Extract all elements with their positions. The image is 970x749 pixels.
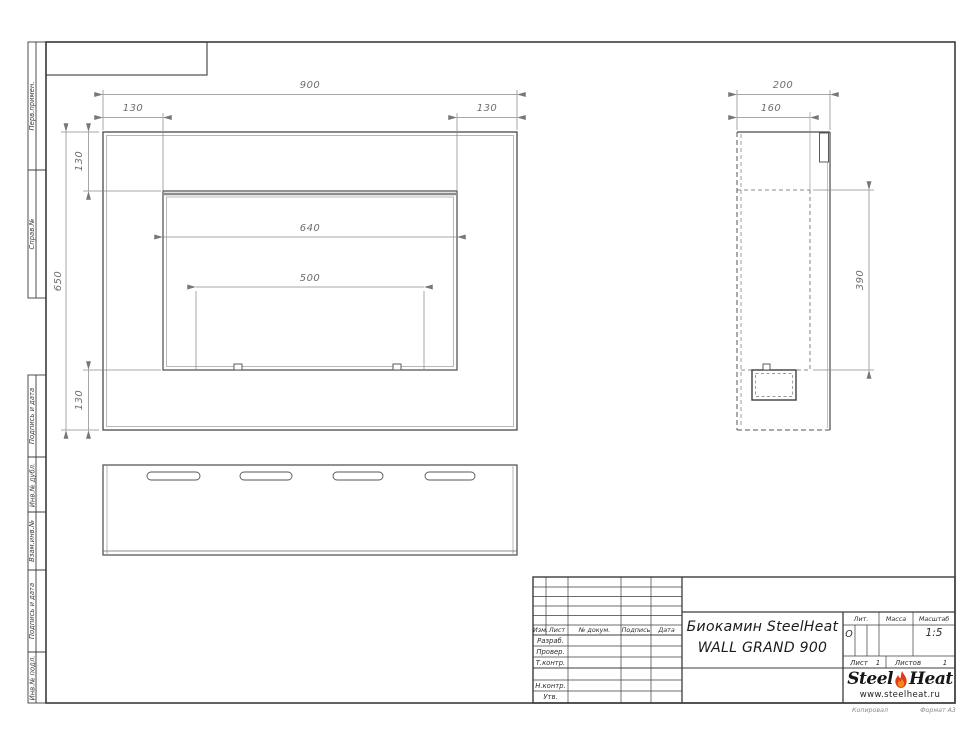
tb-header-izm: Изм. [533,625,546,635]
dim-burner-width-label: 500 [280,273,340,285]
top-stamp-cell [46,42,207,75]
burner-side [752,370,796,400]
format-label: Формат А3 [916,706,960,715]
dim-inner-depth-label: 160 [751,103,791,115]
tb-row-nkontr: Н.контр. [533,681,568,692]
margin-label-podpis-data-2: Подпись и дата [25,570,39,652]
tb-sheets-label: Листов [888,658,928,669]
logo-website: www.steelheat.ru [845,690,955,700]
margin-label-perv-primen: Перв.примен. [25,42,39,170]
tb-lit-label: Лит. [843,614,879,624]
wall-bracket [820,133,829,162]
side-view [737,112,830,430]
dim-depth-label: 200 [763,80,803,92]
margin-label-podpis-data-1: Подпись и дата [25,375,39,457]
flame-icon [894,671,908,688]
tb-row-tkontr: Т.контр. [533,658,568,669]
margin-label-sprav-no: Справ.№ [25,170,39,298]
tb-row-prover: Провер. [533,647,568,658]
dim-flange-top-label: 130 [74,141,86,181]
dim-flange-bottom-label: 130 [74,380,86,420]
margin-label-vzam-inv: Взам.инв.№ [25,512,39,570]
tb-sheet-label: Лист [845,658,873,669]
dim-overall-height-label: 650 [53,261,65,301]
logo-heat-text: Heat [909,669,953,689]
product-title-line2: WALL GRAND 900 [684,638,841,658]
copied-label: Копировал [848,706,892,715]
front-dimensions [61,90,517,430]
tb-sheet-value: 1 [872,658,884,669]
tb-header-podpis: Подпись [621,625,651,635]
burner-tab-right [393,364,401,370]
margin-label-inv-dubl: Инв.№ дубл. [25,458,39,513]
tb-row-utv: Утв. [533,692,568,703]
margin-label-inv-podl: Инв.№ подл. [25,653,39,704]
vent-slots [147,472,475,480]
dim-opening-height-label: 390 [855,260,867,300]
steelheat-logo: Steel Heat [845,669,955,689]
tb-scale-label: Масштаб [913,614,955,624]
tb-header-dokum: № докум. [568,625,621,635]
bottom-view [103,465,517,555]
tb-header-data: Дата [651,625,682,635]
tb-mass-label: Масса [879,614,913,624]
sheet-frame [46,42,955,703]
dim-overall-width-label: 900 [280,80,340,92]
dim-flange-left-label: 130 [113,103,153,115]
burner-tab-left [234,364,242,370]
dim-flange-right-label: 130 [467,103,507,115]
dim-opening-width-label: 640 [280,223,340,235]
tb-sheets-value: 1 [938,658,952,669]
tb-lit-value: О [843,629,855,640]
logo-steel-text: Steel [847,669,893,689]
tb-header-list: Лист [546,625,568,635]
product-title-line1: Биокамин SteelHeat [684,617,841,637]
drawing-sheet: Перв.примен. Справ.№ Подпись и дата Инв.… [0,0,970,749]
tb-row-razrab: Разраб. [533,636,568,647]
tb-scale-value: 1:5 [913,627,955,639]
